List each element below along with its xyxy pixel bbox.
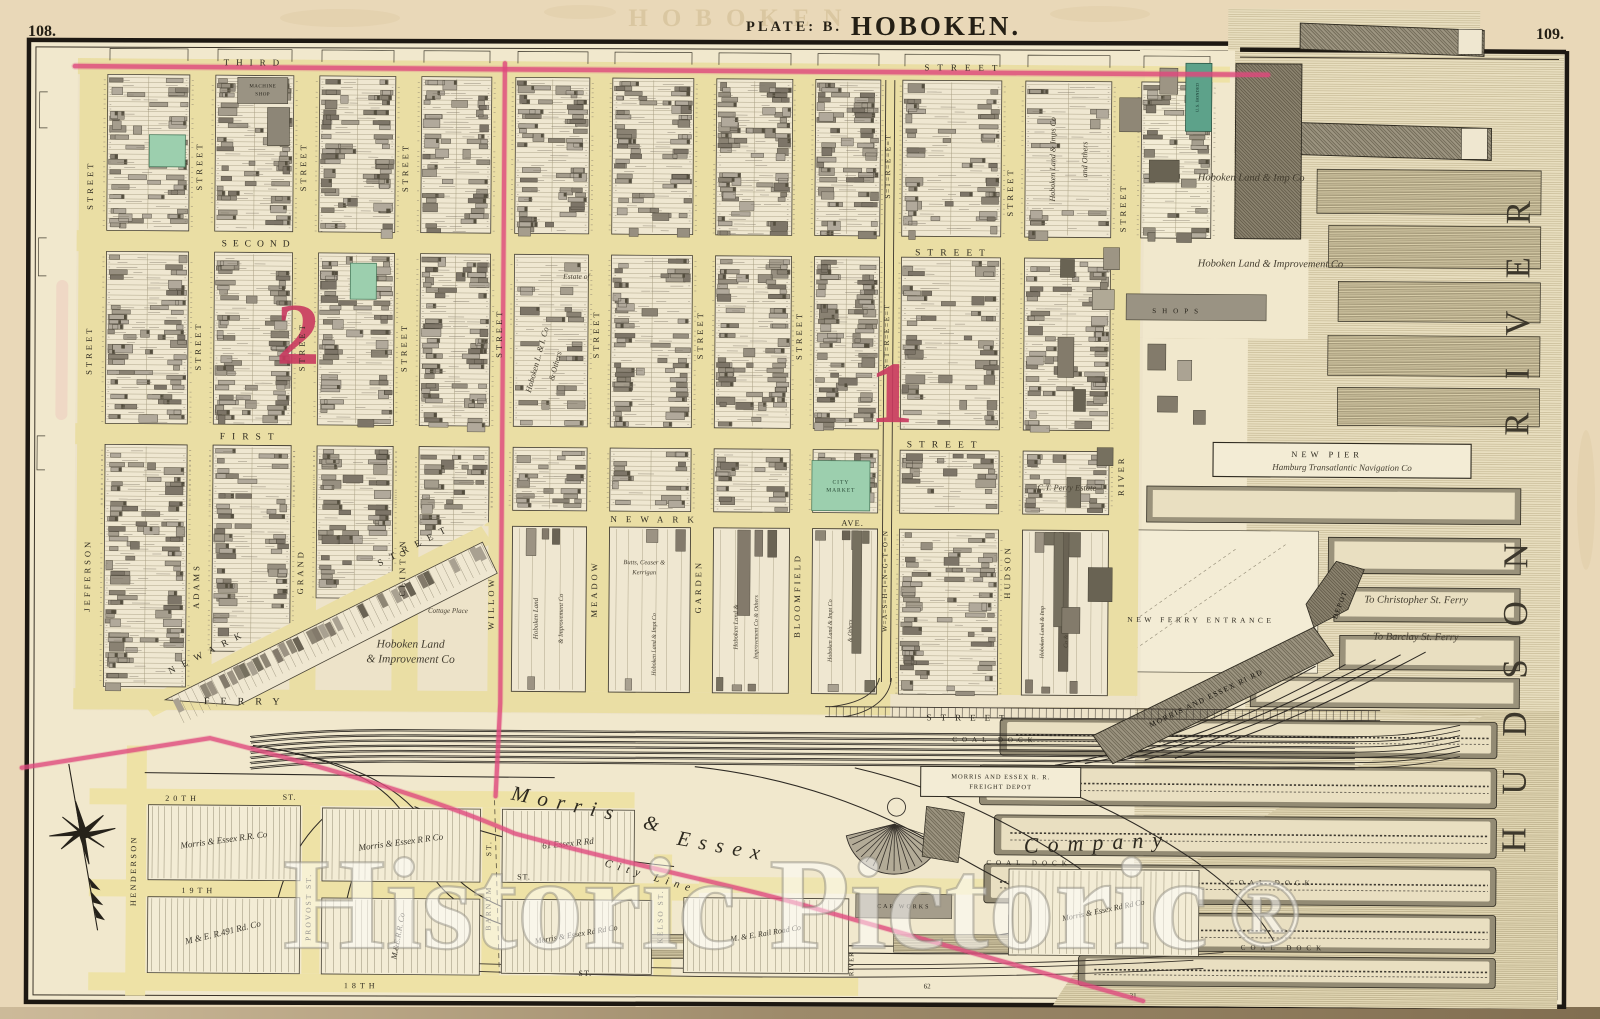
svg-text:STREET: STREET	[194, 141, 204, 190]
svg-text:Historic Pictoric: Historic Pictoric	[283, 832, 1208, 977]
svg-text:NEW FERRY ENTRANCE: NEW FERRY ENTRANCE	[1127, 615, 1274, 625]
svg-text:STREET: STREET	[1118, 183, 1128, 232]
svg-text:STREET: STREET	[400, 143, 410, 192]
svg-text:FERRY: FERRY	[204, 696, 291, 708]
svg-text:STREET: STREET	[915, 248, 992, 259]
svg-text:NEWARK: NEWARK	[610, 514, 703, 525]
svg-text:C.T. Perry Estate: C.T. Perry Estate	[1037, 482, 1096, 492]
svg-text:GRAND: GRAND	[295, 549, 305, 594]
svg-text:THIRD: THIRD	[224, 57, 287, 67]
svg-text:STREET: STREET	[907, 440, 984, 451]
svg-text:AVE.: AVE.	[841, 518, 864, 528]
svg-text:STREET: STREET	[591, 309, 601, 358]
svg-text:To Christopher St. Ferry: To Christopher St. Ferry	[1364, 595, 1468, 607]
svg-text:PLATE: B.: PLATE: B.	[746, 19, 842, 35]
svg-text:STREET: STREET	[927, 712, 1014, 723]
svg-text:MEADOW: MEADOW	[589, 560, 599, 617]
svg-text:Hamburg Transatlantic Navigati: Hamburg Transatlantic Navigation Co	[1271, 462, 1412, 473]
svg-text:FREIGHT DEPOT: FREIGHT DEPOT	[969, 784, 1032, 791]
svg-text:ADAMS: ADAMS	[191, 563, 201, 609]
svg-text:SHOPS: SHOPS	[1152, 307, 1204, 315]
svg-text:STREET: STREET	[794, 311, 804, 360]
svg-text:HOBOKEN.: HOBOKEN.	[851, 11, 1021, 41]
svg-text:R I V E R: R I V E R	[1497, 189, 1538, 436]
svg-text:U.S. BONDED: U.S. BONDED	[1195, 83, 1200, 112]
svg-text:H U D S O N: H U D S O N	[1494, 531, 1535, 853]
svg-text:S=T=R=E=E=T: S=T=R=E=E=T	[883, 133, 892, 198]
svg-text:STREET: STREET	[85, 161, 95, 210]
svg-text:STREET: STREET	[494, 309, 504, 358]
svg-text:BLOOMFIELD: BLOOMFIELD	[792, 553, 803, 638]
svg-text:FIRST: FIRST	[220, 432, 281, 442]
svg-text:GARDEN: GARDEN	[693, 560, 703, 613]
svg-text:MORRIS AND ESSEX R. R.: MORRIS AND ESSEX R. R.	[951, 774, 1050, 782]
svg-text:To Barclay St. Ferry: To Barclay St. Ferry	[1373, 632, 1459, 644]
svg-text:Hoboken Land & Imp Co: Hoboken Land & Imp Co	[1197, 172, 1305, 184]
svg-text:20TH: 20TH	[165, 794, 200, 803]
svg-text:SECOND: SECOND	[222, 239, 296, 250]
svg-text:MARKET: MARKET	[826, 488, 855, 494]
svg-text:& Improvement Co: & Improvement Co	[366, 653, 455, 666]
svg-text:HENDERSON: HENDERSON	[129, 835, 139, 906]
svg-text:18TH: 18TH	[344, 981, 379, 990]
svg-text:SHOP: SHOP	[255, 92, 270, 97]
svg-text:NEW PIER: NEW PIER	[1291, 449, 1363, 460]
svg-text:COAL DOCK: COAL DOCK	[952, 736, 1037, 745]
svg-text:MACHINE: MACHINE	[249, 84, 276, 89]
svg-text:STREET: STREET	[193, 321, 203, 370]
svg-text:WILLOW: WILLOW	[486, 576, 496, 629]
svg-text:STREET: STREET	[1005, 167, 1015, 216]
svg-text:1: 1	[869, 345, 914, 442]
svg-text:CITY: CITY	[832, 480, 849, 486]
svg-text:62: 62	[924, 982, 932, 990]
svg-text:W=A=S=H=I=N=G=T=O=N: W=A=S=H=I=N=G=T=O=N	[881, 530, 890, 632]
svg-text:STREET: STREET	[924, 62, 1005, 73]
svg-text:STREET: STREET	[84, 326, 94, 375]
svg-text:STREET: STREET	[297, 322, 307, 371]
svg-text:HUDSON: HUDSON	[1002, 545, 1012, 598]
svg-text:109.: 109.	[1536, 26, 1564, 43]
svg-text:108.: 108.	[28, 23, 56, 40]
svg-text:STREET: STREET	[695, 310, 705, 359]
svg-text:STREET: STREET	[298, 142, 308, 191]
svg-text:ST.: ST.	[283, 793, 297, 802]
svg-text:®: ®	[1228, 860, 1301, 968]
svg-text:19TH: 19TH	[182, 886, 217, 895]
svg-text:RIVER: RIVER	[1116, 456, 1126, 497]
svg-text:Hoboken Land: Hoboken Land	[376, 638, 445, 651]
svg-text:Hoboken Land & Improvement Co: Hoboken Land & Improvement Co	[1197, 258, 1343, 270]
svg-text:JEFFERSON: JEFFERSON	[82, 539, 93, 612]
svg-text:STREET: STREET	[399, 323, 409, 372]
